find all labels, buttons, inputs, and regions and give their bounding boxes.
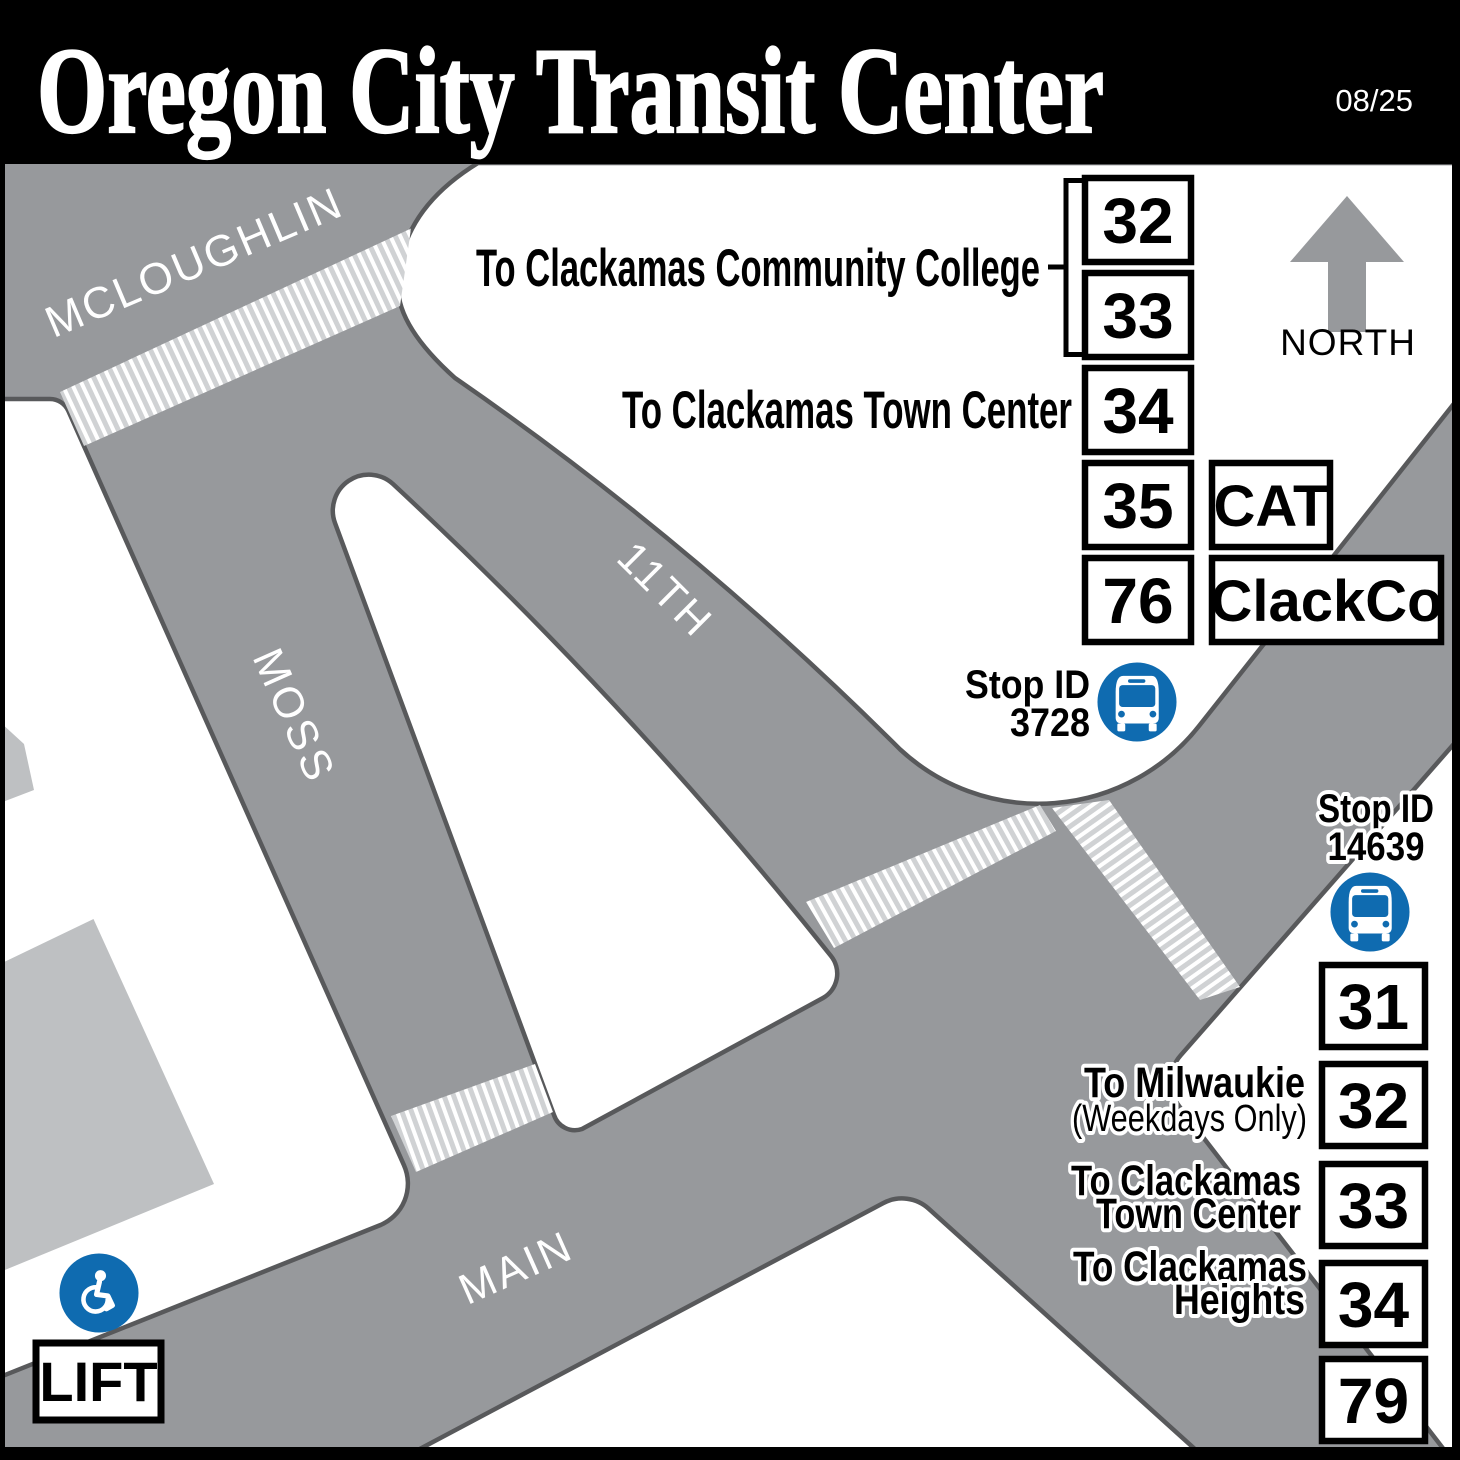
svg-text:3728: 3728 <box>1010 701 1090 745</box>
svg-text:14639: 14639 <box>1328 825 1425 869</box>
svg-text:Town Center: Town Center <box>1096 1190 1301 1238</box>
svg-text:32: 32 <box>1102 185 1173 257</box>
svg-text:To Clackamas Town Center: To Clackamas Town Center <box>622 381 1072 440</box>
svg-text:79: 79 <box>1338 1365 1409 1437</box>
svg-text:34: 34 <box>1102 375 1174 447</box>
svg-text:33: 33 <box>1338 1170 1409 1242</box>
svg-text:LIFT: LIFT <box>39 1350 157 1413</box>
svg-text:35: 35 <box>1102 470 1173 542</box>
svg-text:ClackCo: ClackCo <box>1210 569 1442 634</box>
svg-text:To Clackamas Community College: To Clackamas Community College <box>476 239 1040 298</box>
svg-text:08/25: 08/25 <box>1335 83 1413 118</box>
svg-text:Oregon City Transit Center: Oregon City Transit Center <box>37 22 1104 159</box>
svg-text:(Weekdays Only): (Weekdays Only) <box>1072 1098 1307 1140</box>
svg-text:Heights: Heights <box>1174 1276 1305 1324</box>
svg-text:33: 33 <box>1102 280 1173 352</box>
svg-text:76: 76 <box>1102 565 1173 637</box>
svg-text:NORTH: NORTH <box>1280 322 1416 363</box>
svg-text:31: 31 <box>1338 971 1409 1043</box>
svg-text:34: 34 <box>1338 1269 1410 1341</box>
svg-text:32: 32 <box>1338 1070 1409 1142</box>
svg-text:CAT: CAT <box>1214 474 1329 539</box>
